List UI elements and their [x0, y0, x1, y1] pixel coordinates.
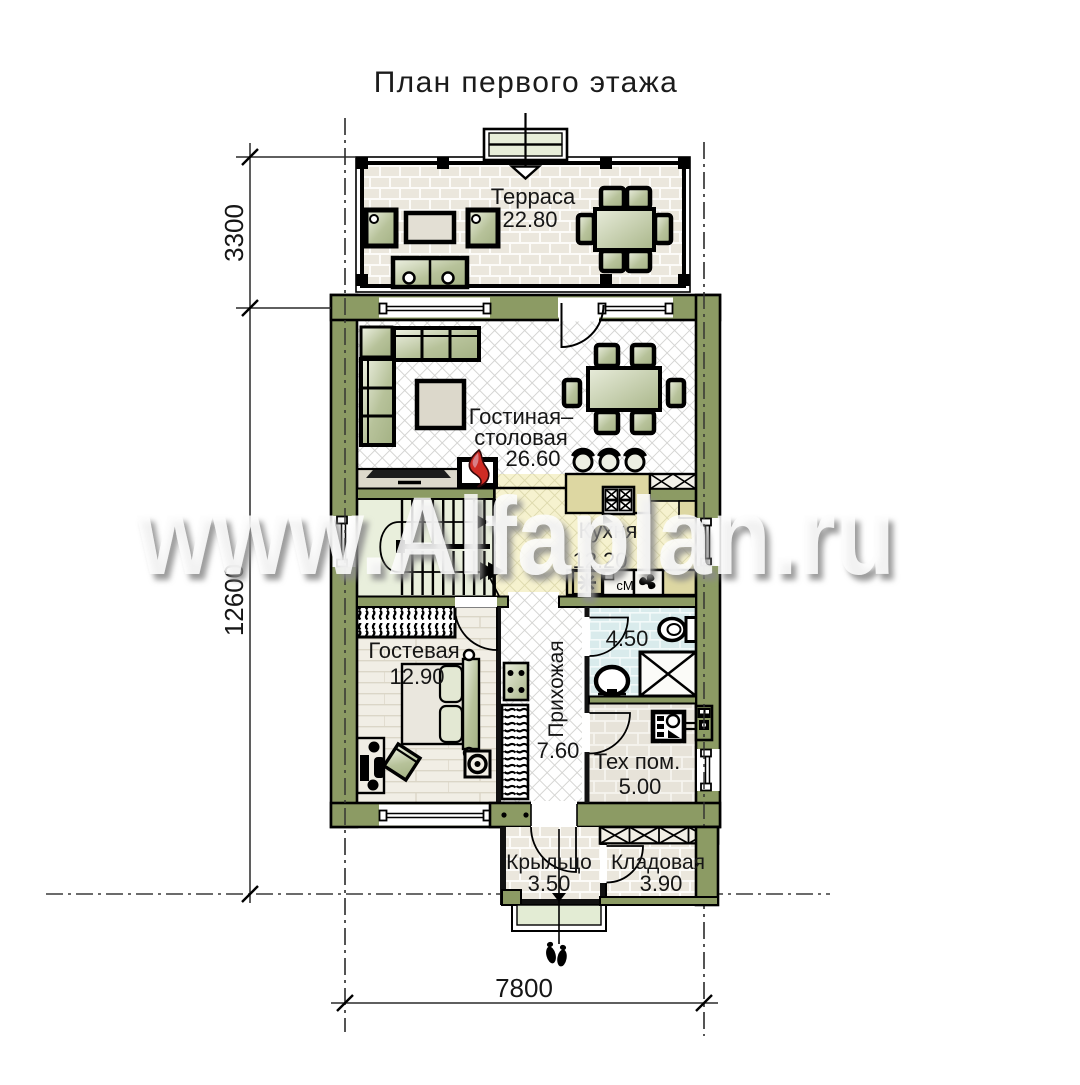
svg-text:Гостевая: Гостевая — [368, 638, 459, 663]
svg-text:План первого этажа: План первого этажа — [374, 66, 679, 99]
svg-text:12.90: 12.90 — [389, 664, 444, 689]
svg-text:3.90: 3.90 — [640, 871, 683, 896]
svg-text:www.Alfaplan.ru: www.Alfaplan.ru — [136, 475, 895, 598]
svg-text:5.00: 5.00 — [619, 774, 662, 799]
svg-text:3.50: 3.50 — [528, 871, 571, 896]
svg-text:7.60: 7.60 — [537, 738, 580, 763]
svg-text:3300: 3300 — [219, 204, 249, 262]
svg-text:26.60: 26.60 — [505, 446, 560, 471]
svg-text:7800: 7800 — [495, 973, 553, 1003]
svg-text:22.80: 22.80 — [502, 207, 557, 232]
svg-text:4.50: 4.50 — [606, 626, 649, 651]
svg-text:Тех пом.: Тех пом. — [594, 749, 680, 774]
svg-text:Прихожая: Прихожая — [545, 640, 568, 737]
svg-text:Терраса: Терраса — [491, 184, 576, 209]
